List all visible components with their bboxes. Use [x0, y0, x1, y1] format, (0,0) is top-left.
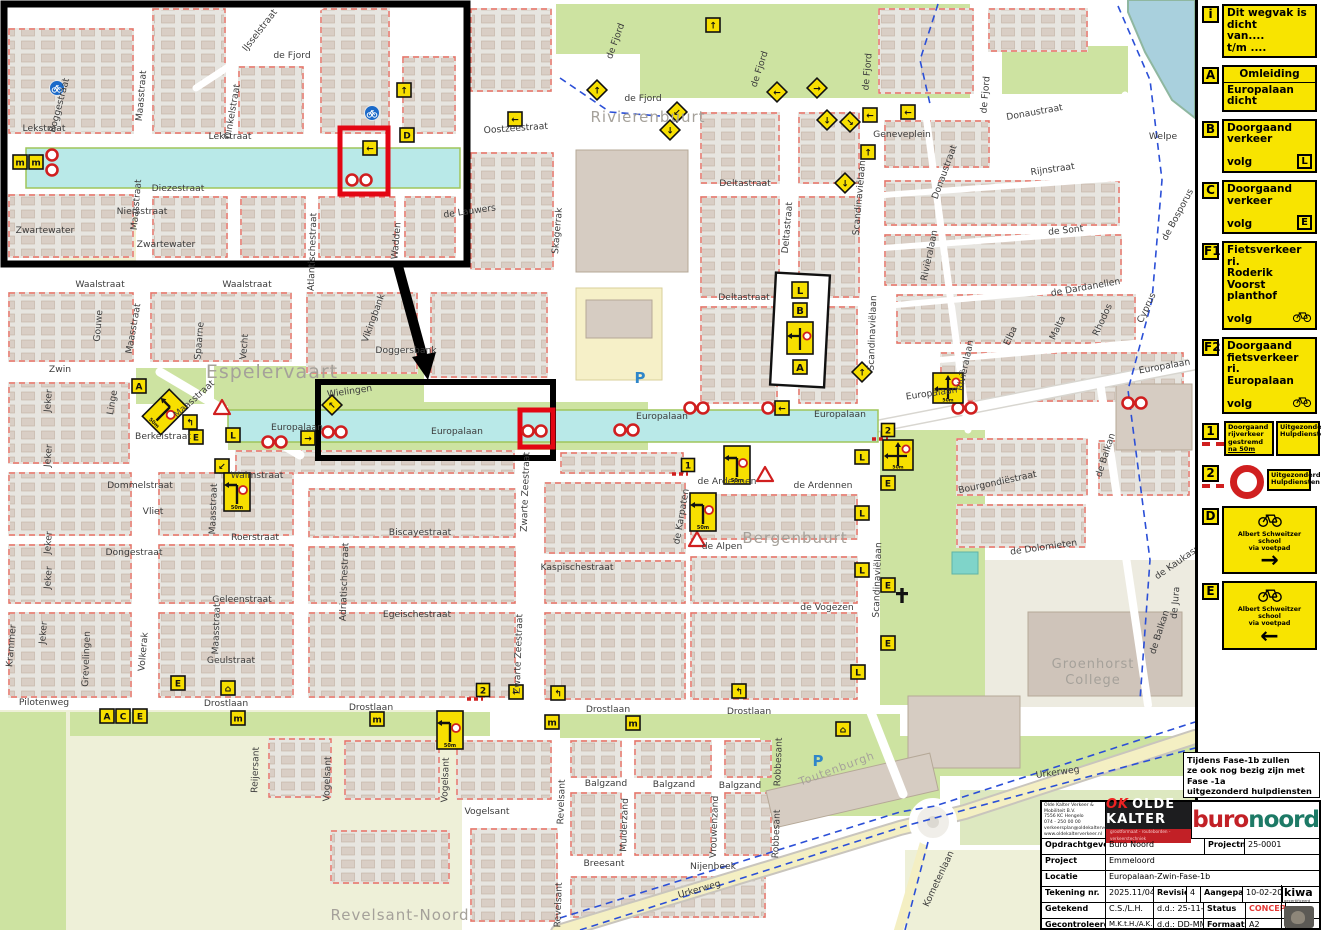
legend-marker-1: 1 [1202, 423, 1219, 440]
opdrachtgever-label: Opdrachtgever [1042, 839, 1106, 854]
legend-marker-col: D [1202, 506, 1219, 525]
legend-panel-line: Doorgaand [1227, 341, 1312, 353]
svg-text:↑: ↑ [593, 87, 601, 97]
closed-road-sign [698, 403, 709, 414]
street-label: Diezestraat [152, 183, 205, 194]
legend-panel-line: Doorgaand [1227, 184, 1312, 196]
svg-text:L: L [859, 567, 865, 577]
closed-road-sign [1136, 398, 1147, 409]
buro-logo-part1: buro [1192, 807, 1248, 833]
legend-panel-line: verkeer [1227, 196, 1312, 208]
svg-text:L: L [859, 510, 865, 520]
street-label: Drostlaan [586, 704, 630, 715]
direction-sign: m [29, 155, 43, 169]
svg-text:↑: ↑ [709, 22, 717, 32]
legend-panel-C: Doorgaandverkeer volgE [1222, 180, 1317, 234]
svg-text:↑: ↑ [858, 369, 866, 379]
project-value: Emmeloord [1106, 855, 1319, 870]
district-label: Bergenbuurt [742, 529, 847, 547]
svg-text:E: E [193, 434, 199, 444]
bicycle-icon [1292, 309, 1312, 326]
street-label: Doggersbank [375, 345, 437, 356]
legend-right-panel: UitgezonderdHulpdiensten [1276, 421, 1320, 456]
kiwa-logo: kiwa gecertificeerd [1281, 885, 1319, 930]
direction-sign: L [226, 428, 240, 442]
address-line: www.oldekalterverkeer.nl [1044, 832, 1103, 838]
parking-icon: P [635, 369, 646, 387]
street-label: Dommelstraat [107, 480, 173, 491]
map: mm←↑D←↑←←↑ELLLLEEA↰EL→↙←ACEmmmm⌂E⌂←↰↰↑↙↓… [0, 0, 1195, 930]
legend-panel-line: dicht [1227, 96, 1312, 108]
legend-marker-col: i [1202, 4, 1219, 23]
project-label: Project [1042, 855, 1106, 870]
street-label: Breesant [583, 858, 624, 869]
note-line: ze ook nog bezig zijn met Fase -1a [1187, 765, 1316, 786]
legend-panel-line: Europalaan [1227, 376, 1312, 388]
legend-panel-line: fietsverkeer ri. [1227, 353, 1312, 376]
legend-right-line: Hulpdiensten [1280, 431, 1316, 438]
svg-text:A: A [104, 713, 111, 723]
street-label: Zwartewater [16, 225, 75, 236]
street-label: Vrouwenzand [708, 796, 721, 859]
legend-marker-col: A [1202, 65, 1219, 84]
street-label: Vecht [238, 333, 251, 360]
street-label: Vliet [143, 506, 164, 517]
street-label: Walmstraat [231, 470, 284, 481]
street-label: Biscayestraat [389, 527, 452, 538]
svg-text:50m: 50m [892, 465, 903, 471]
direction-sign: ↑ [397, 83, 411, 97]
title-block: Olde Kalter Verkeer & Mobiliteit B.V.755… [1040, 800, 1321, 930]
direction-sign: m [370, 712, 384, 726]
svg-text:2: 2 [885, 427, 891, 437]
street-label: Vogelsant [464, 806, 509, 817]
legend-panel-line: Fietsverkeer ri. [1227, 245, 1312, 268]
svg-text:↰: ↰ [735, 688, 743, 698]
street-label: Deltastraat [719, 178, 771, 189]
district-label: Revelsant-Noord [330, 906, 469, 924]
traffic-plan-sheet: mm←↑D←↑←←↑ELLLLEEA↰EL→↙←ACEmmmm⌂E⌂←↰↰↑↙↓… [0, 0, 1321, 930]
svg-text:↓: ↓ [666, 127, 674, 137]
legend-left-line: na 50m [1228, 446, 1270, 453]
svg-text:↓: ↓ [841, 180, 849, 190]
street-label: Nijenbeek [690, 861, 737, 872]
svg-text:↰: ↰ [186, 419, 194, 429]
phase-note: Tijdens Fase-1b zullenze ook nog bezig z… [1183, 752, 1320, 798]
direction-sign: m [545, 715, 559, 729]
legend-item-i: iDit wegvak isdichtvan....t/m .... [1202, 4, 1317, 58]
direction-sign: L [855, 450, 869, 464]
legend-panel-line: Roderik Voorst [1227, 268, 1312, 291]
route-letter-badge: L [1297, 154, 1312, 169]
svg-text:m: m [628, 720, 637, 730]
street-label: Geulstraat [207, 655, 256, 666]
projectnr-value: 25-0001 [1245, 839, 1319, 854]
kiwa-photo [1284, 906, 1314, 928]
legend-item-F2: F2Doorgaandfietsverkeer ri.Europalaan vo… [1202, 337, 1317, 414]
direction-sign: m [626, 716, 640, 730]
gecontroleerd-date: d.d.: DD-MM-2025 [1154, 919, 1204, 930]
street-label: Europalaan [271, 422, 323, 433]
street-label: Balgzand [719, 780, 761, 791]
buro-noord-logo: buro noord [1192, 802, 1319, 838]
svg-text:↓: ↓ [823, 117, 831, 127]
direction-sign: ⌂ [221, 681, 235, 695]
street-label: de Fjord [273, 50, 310, 61]
svg-text:⌂: ⌂ [840, 726, 847, 736]
street-label: de Vogezen [800, 602, 854, 613]
getekend-label: Getekend [1042, 903, 1106, 918]
direction-sign: E [881, 636, 895, 650]
svg-text:50m: 50m [942, 398, 953, 404]
street-label: Jeker [42, 531, 55, 556]
direction-sign: ↑ [706, 18, 720, 32]
tekening-value: 2025.11/045 [1106, 887, 1154, 902]
legend-panel-F2: Doorgaandfietsverkeer ri.Europalaan volg [1222, 337, 1317, 414]
direction-sign: C [116, 709, 130, 723]
gecontroleerd-value: M.K.t.H./A.K. [1106, 919, 1154, 930]
legend-marker-A: A [1202, 67, 1219, 84]
district-label: College [1065, 673, 1121, 688]
legend-marker-B: B [1202, 121, 1219, 138]
street-label: Europalaan [814, 409, 866, 420]
closed-road-sign [523, 426, 534, 437]
svg-text:m: m [31, 159, 40, 169]
street-label: Europalaan [636, 411, 688, 422]
svg-text:m: m [547, 719, 556, 729]
olde-kalter-logo: OKOLDE KALTER grootformaat - routeborden… [1106, 802, 1192, 838]
street-label: Revelsant [552, 882, 565, 928]
closed-road-sign [763, 403, 774, 414]
direction-sign: L [851, 665, 865, 679]
legend-panel-title: Omleiding [1224, 69, 1315, 83]
direction-sign: L [855, 563, 869, 577]
svg-text:L: L [797, 286, 804, 297]
svg-text:B: B [796, 306, 804, 317]
svg-text:←: ← [904, 109, 912, 119]
legend-marker-col: E [1202, 581, 1219, 600]
closed-road-sign [336, 427, 347, 438]
closed-road-sign [1123, 398, 1134, 409]
svg-text:↘: ↘ [846, 119, 854, 129]
closed-road-sign [347, 175, 358, 186]
svg-text:C: C [120, 713, 127, 723]
status-label: Status [1204, 903, 1246, 918]
svg-text:↙: ↙ [218, 463, 226, 473]
legend-marker-col: 1 [1202, 421, 1224, 446]
legend-item-C: CDoorgaandverkeer volgE [1202, 180, 1317, 234]
projectnr-label: Projectnr. [1205, 839, 1245, 854]
buro-logo-part2: noord [1248, 807, 1319, 833]
street-label: Dongestraat [105, 547, 162, 558]
street-label: Deltastraat [718, 292, 770, 303]
street-label: Egeischestraat [383, 609, 452, 620]
legend-left-panel: Doorgaandrijverkeergestremdna 50m [1224, 421, 1274, 456]
street-label: Maasstraat [207, 483, 220, 535]
detour-panel: 50m [437, 711, 463, 749]
street-label: Drostlaan [204, 698, 248, 709]
svg-text:D: D [403, 132, 410, 142]
direction-sign: E [171, 676, 185, 690]
status-value: CONCEPT [1246, 903, 1286, 918]
closed-road-sign [361, 175, 372, 186]
title-block-logos: Olde Kalter Verkeer & Mobiliteit B.V.755… [1042, 802, 1319, 839]
legend-item-D: DAlbert Schweitzer schoolvia voetpad→ [1202, 506, 1317, 574]
street-label: Geleenstraat [212, 594, 272, 605]
svg-text:⌂: ⌂ [225, 685, 232, 695]
svg-text:←: ← [778, 405, 786, 415]
direction-sign: E [133, 709, 147, 723]
legend-panel-line: t/m .... [1227, 43, 1312, 55]
legend-marker-col: C [1202, 180, 1219, 199]
legend-item-E: EAlbert Schweitzer schoolvia voetpad← [1202, 581, 1317, 649]
legend-item-B: BDoorgaandverkeer volgL [1202, 119, 1317, 173]
svg-text:↖: ↖ [328, 402, 336, 412]
direction-sign: L [855, 506, 869, 520]
red-dash-icon [1202, 484, 1224, 488]
direction-sign: ← [863, 108, 877, 122]
svg-text:↰: ↰ [554, 690, 562, 700]
street-label: Zwin [49, 364, 71, 375]
svg-text:E: E [885, 640, 891, 650]
legend-marker-col: F1 [1202, 241, 1219, 260]
direction-sign: → [301, 431, 315, 445]
svg-text:←: ← [366, 145, 374, 155]
street-label: Vogelsant [439, 757, 452, 803]
street-label: Robbesant [772, 737, 785, 787]
bicycle-icon [1227, 585, 1312, 606]
street-label: Revelsant [555, 779, 568, 825]
direction-sign: A [132, 379, 146, 393]
closed-road-sign [953, 403, 964, 414]
closed-road-sign [536, 426, 547, 437]
legend-forbidden-row: UitgezonderdHulpdiensten [1224, 463, 1311, 499]
street-label: de Fjord [624, 93, 661, 104]
legend-double-row: Doorgaandrijverkeergestremdna 50mUitgezo… [1224, 421, 1320, 456]
direction-sign: E [881, 476, 895, 490]
legend-item-A: AOmleidingEuropalaandicht [1202, 65, 1317, 112]
street-label: Welpe [1149, 131, 1178, 142]
direction-sign: ↰ [732, 684, 746, 698]
svg-text:1: 1 [685, 462, 691, 472]
direction-sign: ↰ [551, 686, 565, 700]
aangepast-value: 10-02-2026 [1243, 887, 1283, 902]
bicycle-sign [365, 106, 380, 121]
legend-marker-C: C [1202, 182, 1219, 199]
legend-marker-F2: F2 [1202, 339, 1219, 356]
crossing-detour-panel: 50m [883, 440, 913, 471]
svg-text:E: E [137, 713, 143, 723]
street-label: Berkelstraat [135, 431, 191, 442]
svg-text:50m: 50m [444, 743, 456, 749]
svg-text:2: 2 [480, 687, 486, 697]
svg-text:m: m [15, 159, 24, 169]
route-letter-panel: LBA [770, 273, 830, 388]
legend-right-line: Hulpdiensten [1271, 479, 1307, 486]
street-label: Reijersant [249, 746, 262, 793]
direction-sign: ↑ [861, 145, 875, 159]
kiwa-subtext: gecertificeerd [1284, 899, 1317, 904]
street-label: Jeker [42, 566, 55, 591]
locatie-label: Locatie [1042, 871, 1106, 886]
direction-arrow: → [1227, 552, 1312, 570]
olde-kalter-mark: OK [1106, 797, 1129, 812]
svg-text:↑: ↑ [400, 87, 408, 97]
street-label: Europalaan [431, 426, 483, 437]
street-label: Drostlaan [727, 706, 771, 717]
street-label: de Ardennen [698, 476, 757, 487]
street-label: Balgzand [653, 779, 695, 790]
street-label: Muiderzand [618, 798, 631, 852]
direction-sign: ⌂ [836, 722, 850, 736]
street-label: Grevelingen [80, 631, 93, 687]
direction-sign: E [881, 578, 895, 592]
svg-text:L: L [859, 454, 865, 464]
legend-item-F1: F1Fietsverkeer ri.Roderik Voorstplanthof… [1202, 241, 1317, 330]
closed-road-sign [276, 437, 287, 448]
closed-road-sign [615, 425, 626, 436]
revisie-value: 4 [1187, 887, 1201, 902]
svg-text:m: m [233, 715, 242, 725]
svg-text:→: → [813, 85, 821, 95]
route-letter-badge: E [1297, 215, 1312, 230]
note-line: Tijdens Fase-1b zullen [1187, 755, 1316, 765]
no-entry-sign-icon [1230, 465, 1264, 499]
direction-sign: m [231, 711, 245, 725]
getekend-value: C.S./L.H. [1106, 903, 1154, 918]
legend-marker-F1: F1 [1202, 243, 1219, 260]
getekend-date: d.d.: 25-11-2025 [1154, 903, 1204, 918]
svg-text:A: A [136, 383, 143, 393]
svg-text:50m: 50m [697, 525, 709, 531]
aangepast-label: Aangepast [1201, 887, 1243, 902]
legend-right-panel: UitgezonderdHulpdiensten [1267, 469, 1311, 491]
formaat-label: Formaat [1204, 919, 1246, 930]
direction-sign: ← [775, 401, 789, 415]
svg-text:A: A [796, 363, 804, 374]
svg-text:L: L [230, 432, 236, 442]
tekening-label: Tekening nr. [1042, 887, 1106, 902]
detour-panel: 50m [690, 493, 716, 531]
street-label: Jeker [42, 389, 55, 414]
opdrachtgever-value: Buro Noord [1106, 839, 1205, 854]
svg-text:E: E [885, 582, 891, 592]
street-label: Balgzand [585, 778, 627, 789]
legend-panel-A: OmleidingEuropalaandicht [1222, 65, 1317, 112]
address-line: Olde Kalter Verkeer & Mobiliteit B.V. [1044, 803, 1103, 814]
street-label: Jeker [42, 444, 55, 469]
map-canvas: mm←↑D←↑←←↑ELLLLEEA↰EL→↙←ACEmmmm⌂E⌂←↰↰↑↙↓… [0, 0, 1195, 930]
svg-text:P: P [635, 369, 646, 387]
street-label: Kaspischestraat [540, 562, 613, 573]
street-label: Vogelsant [321, 756, 334, 802]
street-label: de Alpen [702, 541, 743, 552]
direction-sign: ↙ [215, 459, 229, 473]
svg-text:→: → [304, 435, 312, 445]
formaat-value: A2 [1246, 919, 1286, 930]
legend-marker-2: 2 [1202, 465, 1219, 482]
closed-road-sign [47, 165, 58, 176]
bicycle-icon [1227, 510, 1312, 531]
legend-item-1: 1Doorgaandrijverkeergestremdna 50mUitgez… [1202, 421, 1317, 456]
direction-sign: D [400, 128, 414, 142]
street-label: Lekstraat [23, 123, 66, 134]
closed-road-sign [628, 425, 639, 436]
direction-sign: m [13, 155, 27, 169]
direction-sign: A [100, 709, 114, 723]
legend-panel-B: Doorgaandverkeer volgL [1222, 119, 1317, 173]
direction-sign: ← [901, 105, 915, 119]
legend-marker-col: F2 [1202, 337, 1219, 356]
legend-panel-line: planthof [1227, 291, 1312, 303]
direction-arrow: ← [1227, 628, 1312, 646]
address-line: verkeersplan@oldekalterverkeer.nl [1044, 826, 1103, 832]
street-label: Geneveplein [873, 129, 931, 140]
street-label: Jeker [37, 621, 50, 646]
legend-panel-line: Dit wegvak is [1227, 8, 1312, 20]
legend-item-2: 2UitgezonderdHulpdiensten [1202, 463, 1317, 499]
svg-text:E: E [885, 480, 891, 490]
locatie-value: Europalaan-Zwin-Fase-1b [1106, 871, 1319, 886]
svg-text:E: E [175, 680, 181, 690]
svg-text:L: L [855, 669, 861, 679]
district-label: Rivierenbuurt [590, 108, 705, 126]
closed-road-sign [323, 427, 334, 438]
street-label: Zwartewater [137, 239, 196, 250]
legend-marker-E: E [1202, 583, 1219, 600]
legend-marker-col: 2 [1202, 463, 1224, 488]
svg-text:↑: ↑ [864, 149, 872, 159]
street-label: Maasstraat [210, 603, 223, 655]
company-address: Olde Kalter Verkeer & Mobiliteit B.V.755… [1042, 802, 1106, 838]
note-line: uitgezonderd hulpdiensten [1187, 786, 1316, 796]
gecontroleerd-label: Gecontroleerd [1042, 919, 1106, 930]
legend-marker-D: D [1202, 508, 1219, 525]
svg-text:←: ← [773, 89, 781, 99]
street-label: Waalstraat [75, 279, 125, 290]
street-label: Waalstraat [222, 279, 272, 290]
direction-sign: ↰ [183, 415, 197, 429]
legend-panel-F1: Fietsverkeer ri.Roderik Voorstplanthof v… [1222, 241, 1317, 330]
legend-marker-col: B [1202, 119, 1219, 138]
district-label: Espelervaart [206, 361, 338, 383]
legend-panel-line: van.... [1227, 31, 1312, 43]
legend-panel-i: Dit wegvak isdichtvan....t/m .... [1222, 4, 1317, 58]
svg-text:50m: 50m [231, 505, 243, 511]
legend-panel-E: Albert Schweitzer schoolvia voetpad← [1222, 581, 1317, 649]
legend-panel-line: verkeer [1227, 134, 1312, 146]
district-label: Groenhorst [1052, 657, 1135, 672]
red-dash-icon [1202, 442, 1224, 446]
street-label: Robbesant [770, 809, 783, 859]
closed-road-sign [263, 437, 274, 448]
closed-road-sign [47, 150, 58, 161]
legend-panel-D: Albert Schweitzer schoolvia voetpad→ [1222, 506, 1317, 574]
svg-text:m: m [372, 716, 381, 726]
direction-sign: ← [363, 141, 377, 155]
street-label: Pilotenweg [19, 697, 69, 708]
svg-text:←: ← [866, 112, 874, 122]
direction-sign: E [189, 430, 203, 444]
street-label: Drostlaan [349, 702, 393, 713]
street-label: Roerstraat [231, 532, 279, 543]
revisie-label: Revisie [1154, 887, 1187, 902]
closed-road-sign [966, 403, 977, 414]
street-label: de Ardennen [794, 480, 853, 491]
bicycle-icon [1292, 394, 1312, 411]
legend-marker-i: i [1202, 6, 1219, 23]
street-label: Niersstraat [117, 206, 168, 217]
